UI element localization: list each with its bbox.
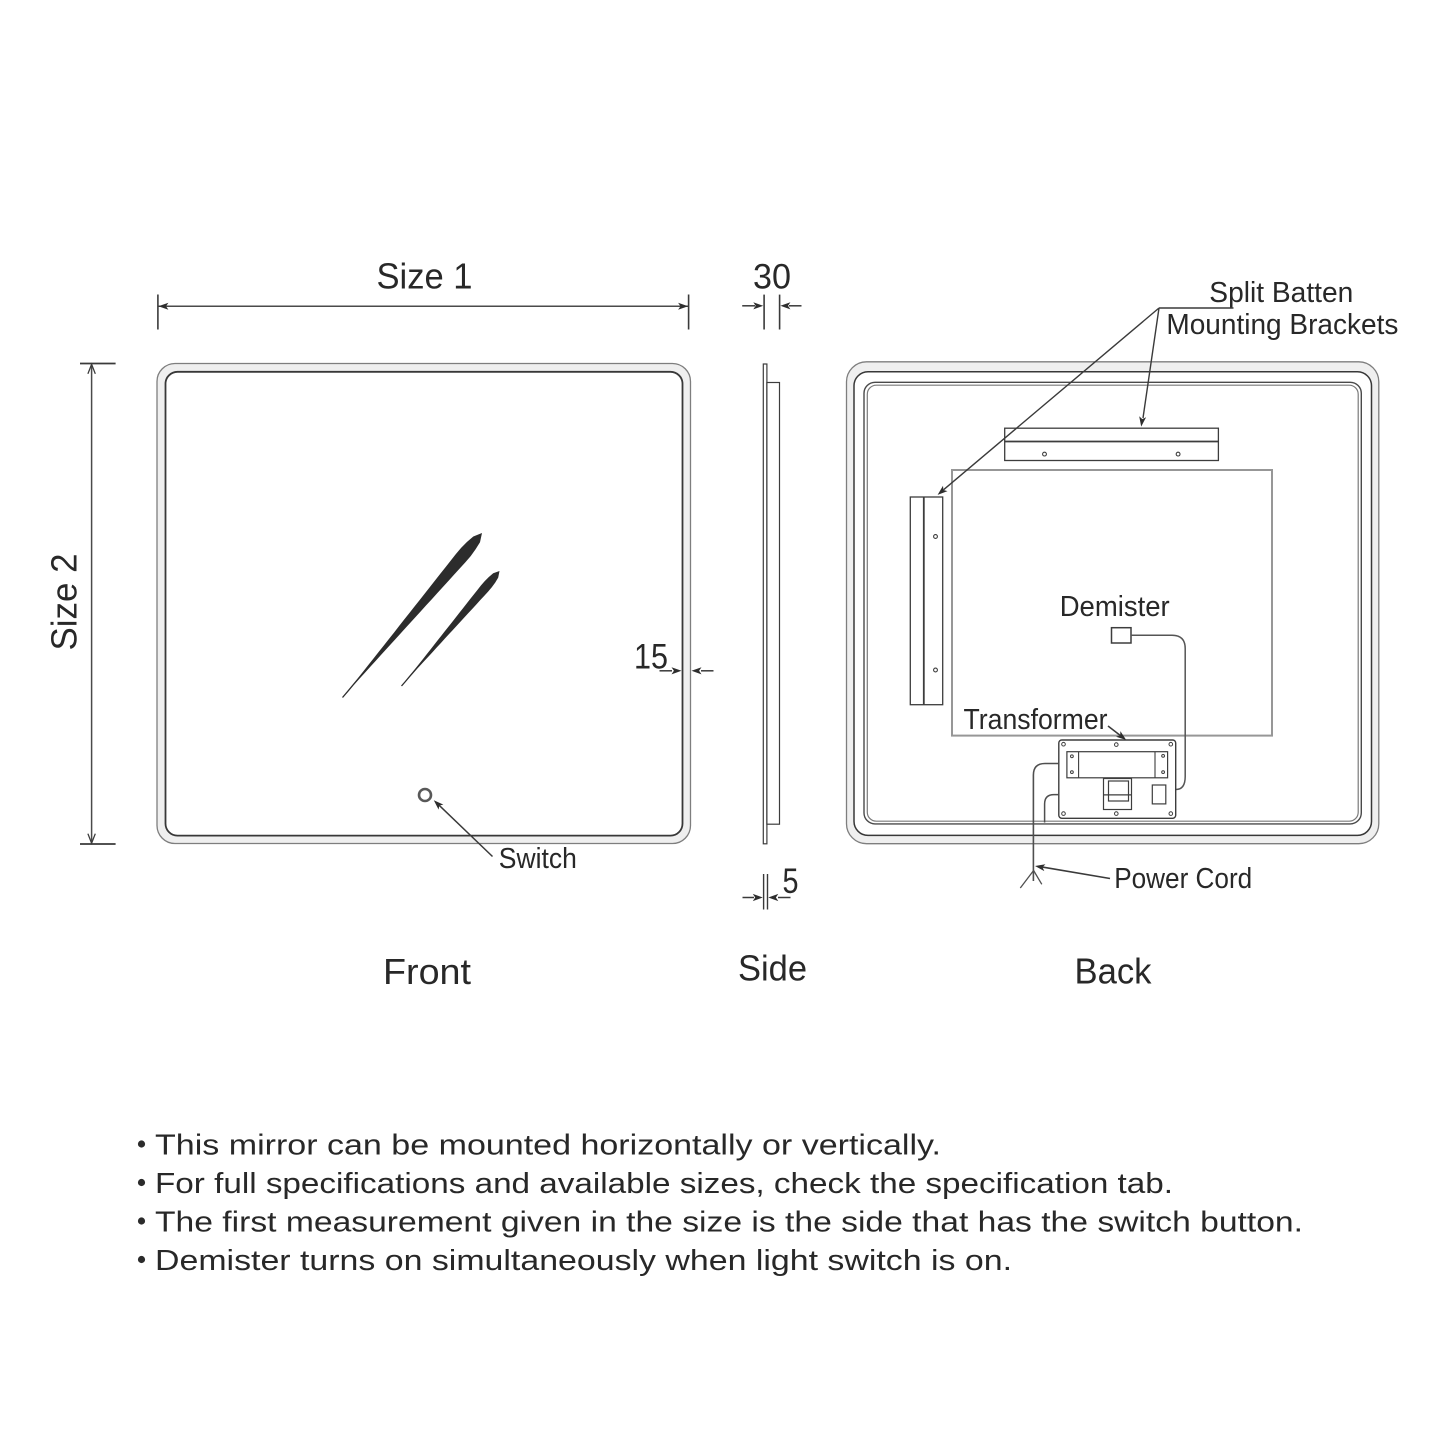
svg-text:5: 5 [783,862,799,901]
svg-text:Switch: Switch [499,843,577,875]
svg-text:Transformer: Transformer [964,704,1108,736]
svg-text:Demister turns on simultaneous: Demister turns on simultaneously when li… [155,1245,1012,1277]
svg-text:Back: Back [1075,951,1153,992]
svg-text:Front: Front [383,951,471,992]
svg-text:Size 1: Size 1 [377,255,473,296]
svg-text:30: 30 [753,257,791,296]
svg-text:The first measurement given in: The first measurement given in the size … [155,1207,1303,1239]
svg-text:Size 2: Size 2 [44,554,85,651]
svg-text:Demister: Demister [1060,591,1170,623]
svg-text:For full specifications and av: For full specifications and available si… [155,1168,1173,1200]
svg-text:Side: Side [738,948,807,989]
svg-text:Split Batten: Split Batten [1209,277,1353,309]
svg-text:This mirror can be mounted hor: This mirror can be mounted horizontally … [155,1130,941,1162]
svg-text:Mounting Brackets: Mounting Brackets [1166,309,1398,341]
svg-text:Power Cord: Power Cord [1114,863,1252,895]
